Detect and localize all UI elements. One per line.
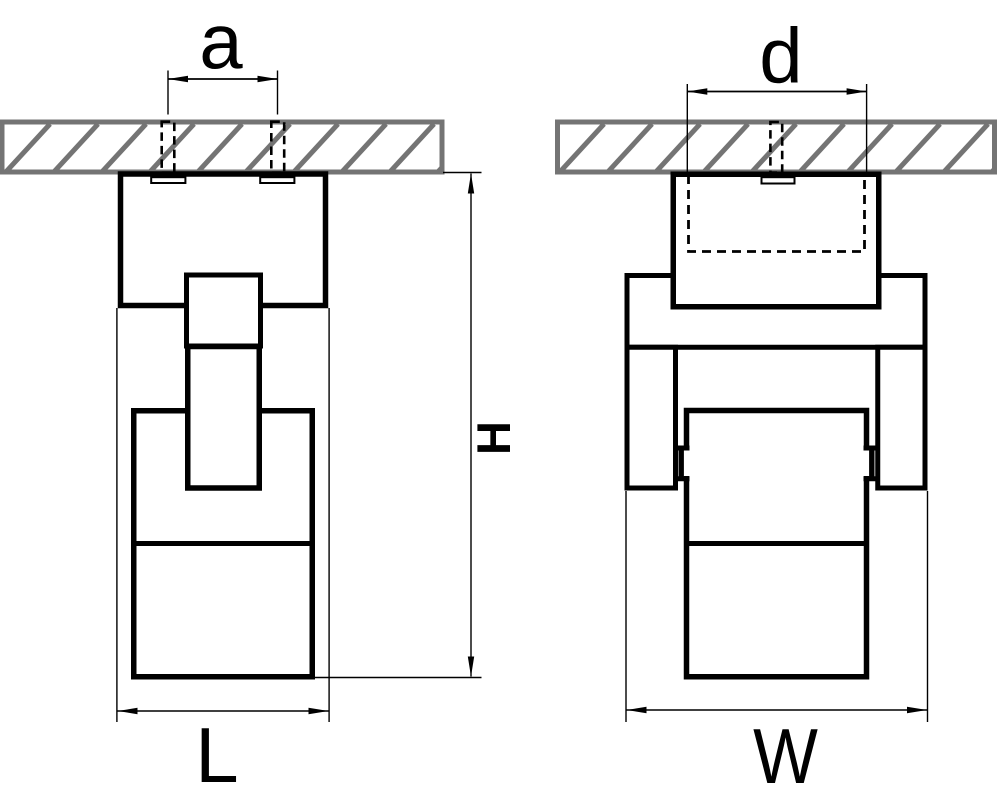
svg-text:W: W <box>753 712 818 800</box>
svg-text:L: L <box>195 711 238 799</box>
svg-text:H: H <box>467 421 520 455</box>
svg-text:d: d <box>759 12 802 100</box>
svg-text:a: a <box>199 0 243 85</box>
